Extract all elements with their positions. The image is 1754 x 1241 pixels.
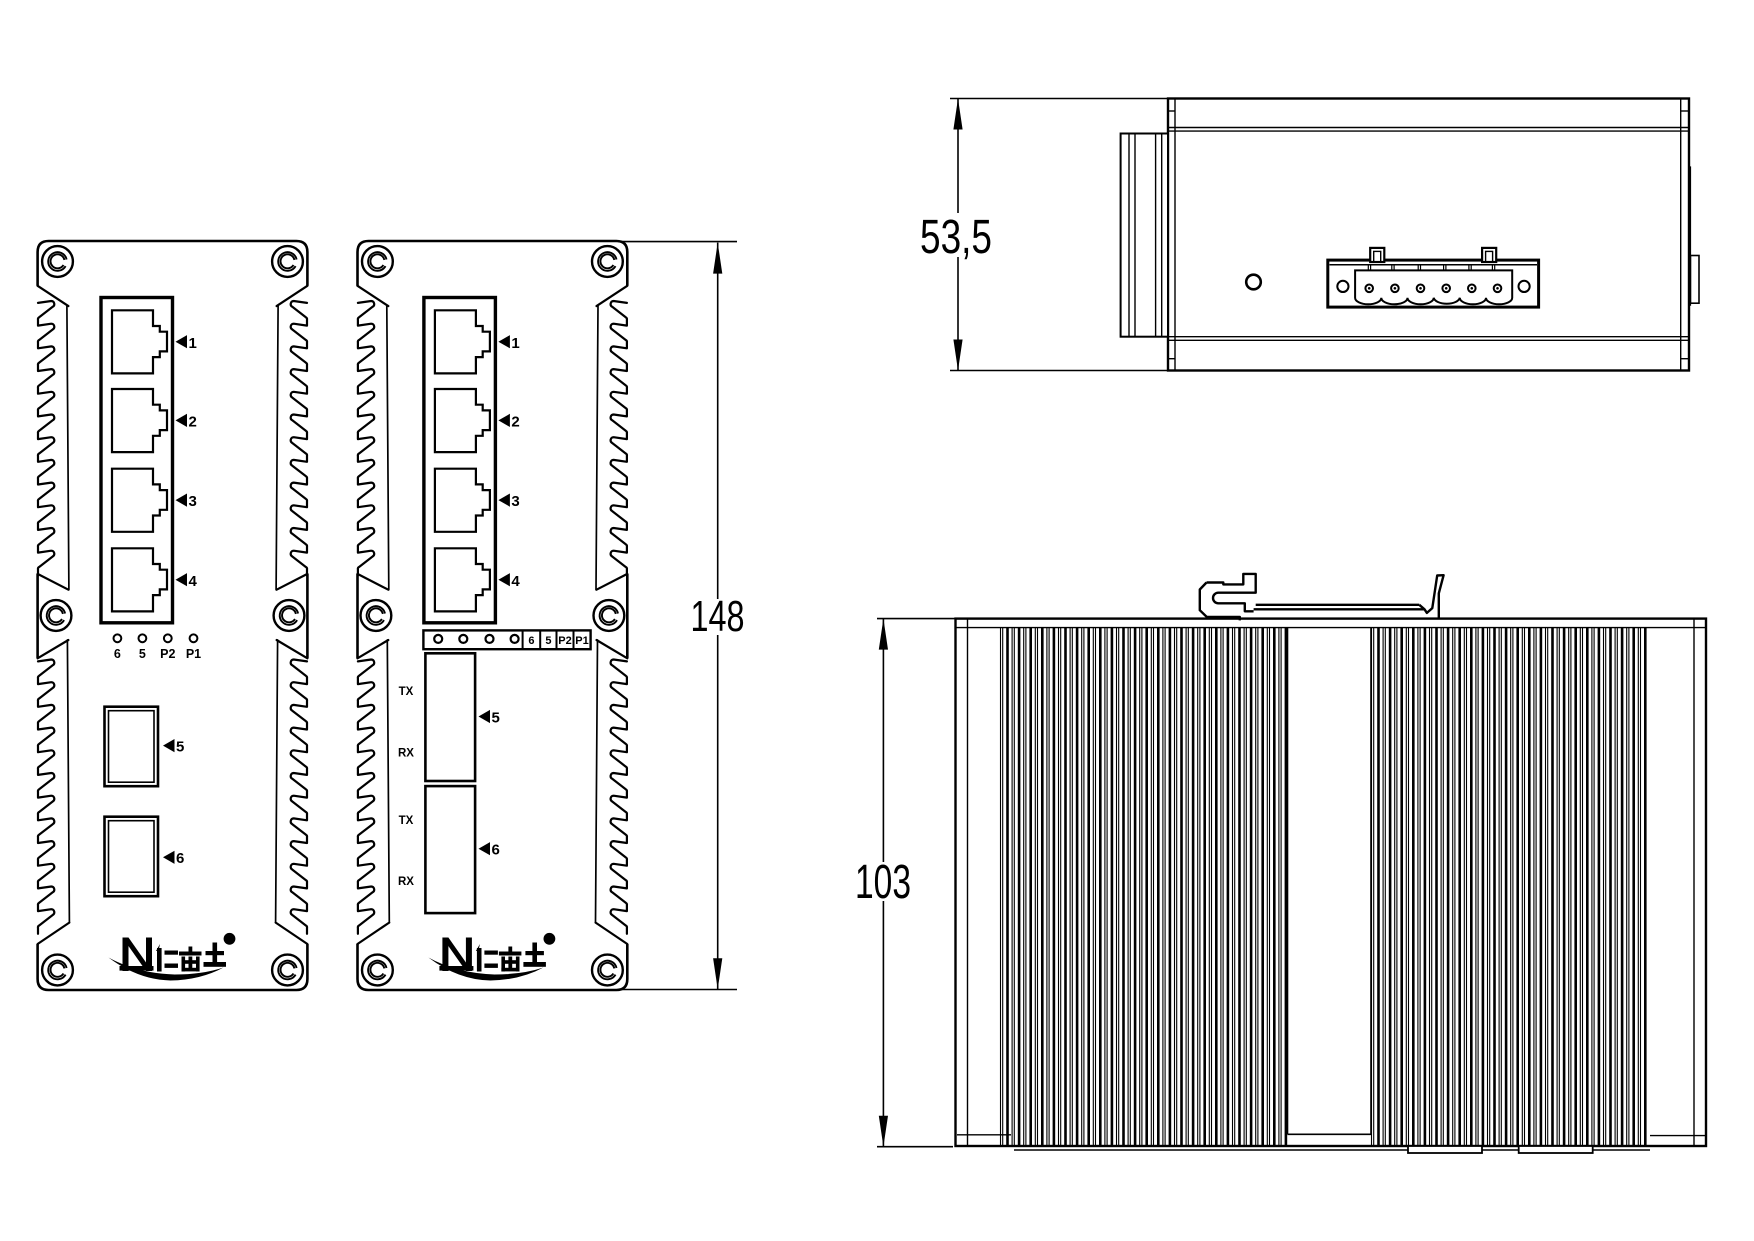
- svg-text:4: 4: [189, 573, 198, 590]
- svg-text:5: 5: [139, 647, 146, 661]
- svg-text:1: 1: [189, 335, 197, 352]
- svg-text:103: 103: [855, 856, 911, 909]
- svg-text:P1: P1: [186, 647, 201, 661]
- svg-text:2: 2: [189, 414, 197, 431]
- svg-text:3: 3: [189, 493, 197, 510]
- svg-text:5: 5: [545, 635, 551, 647]
- svg-text:TX: TX: [399, 815, 414, 827]
- svg-text:5: 5: [492, 710, 500, 727]
- svg-text:RX: RX: [398, 876, 414, 888]
- svg-text:6: 6: [176, 850, 184, 867]
- svg-text:6: 6: [114, 647, 121, 661]
- svg-text:148: 148: [691, 592, 745, 641]
- svg-text:TX: TX: [399, 686, 414, 698]
- svg-text:P2: P2: [160, 647, 175, 661]
- svg-text:4: 4: [511, 573, 520, 590]
- svg-text:6: 6: [528, 635, 534, 647]
- svg-text:3: 3: [511, 493, 519, 510]
- svg-text:5: 5: [176, 739, 184, 756]
- svg-text:1: 1: [511, 335, 519, 352]
- svg-text:6: 6: [492, 842, 500, 859]
- svg-text:2: 2: [511, 414, 519, 431]
- svg-text:P1: P1: [575, 635, 588, 647]
- svg-text:53,5: 53,5: [920, 211, 992, 264]
- svg-text:P2: P2: [558, 635, 571, 647]
- svg-text:RX: RX: [398, 747, 414, 759]
